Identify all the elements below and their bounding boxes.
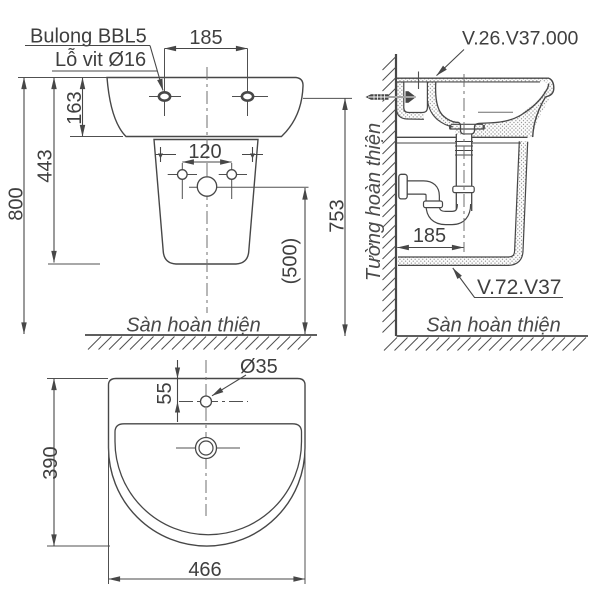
svg-text:(500): (500): [280, 238, 302, 285]
svg-text:800: 800: [6, 187, 28, 220]
svg-text:163: 163: [64, 91, 86, 124]
svg-text:55: 55: [154, 382, 176, 404]
svg-text:Tường hoàn thiện: Tường hoàn thiện: [363, 123, 385, 281]
svg-text:Sàn hoàn thiện: Sàn hoàn thiện: [426, 315, 561, 337]
svg-text:120: 120: [188, 141, 221, 163]
svg-text:185: 185: [413, 225, 446, 247]
svg-text:753: 753: [327, 199, 349, 232]
svg-text:Lỗ vit Ø16: Lỗ vit Ø16: [55, 48, 146, 71]
svg-text:V.26.V37.000: V.26.V37.000: [462, 28, 579, 50]
svg-text:443: 443: [35, 149, 57, 182]
svg-text:Sàn hoàn thiện: Sàn hoàn thiện: [126, 315, 261, 337]
svg-text:Bulong BBL5: Bulong BBL5: [30, 26, 147, 48]
svg-text:466: 466: [188, 559, 221, 581]
svg-text:390: 390: [40, 446, 62, 479]
svg-text:185: 185: [189, 27, 222, 49]
svg-text:V.72.V37: V.72.V37: [477, 276, 561, 299]
